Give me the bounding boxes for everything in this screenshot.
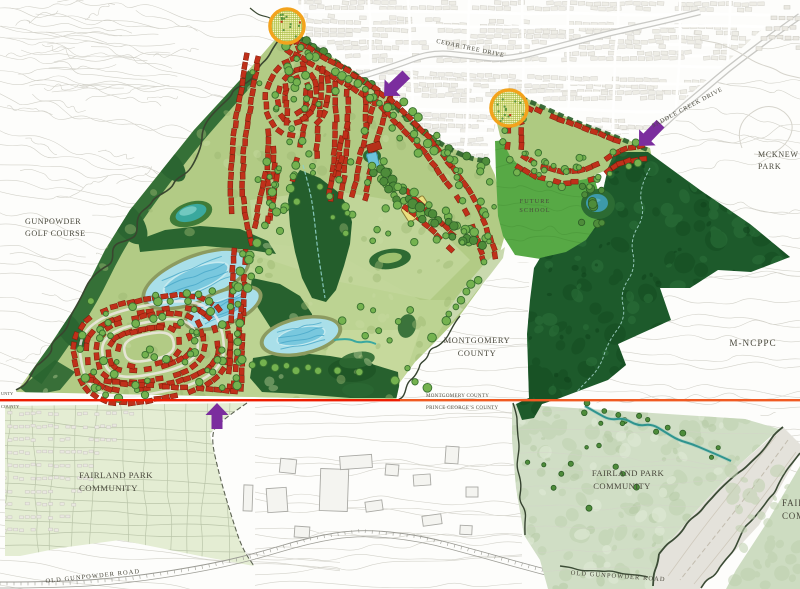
svg-text:FAIRLAND PARK: FAIRLAND PARK bbox=[592, 468, 665, 478]
svg-text:FUTURE: FUTURE bbox=[520, 198, 551, 205]
svg-text:GOLF COURSE: GOLF COURSE bbox=[25, 229, 86, 238]
svg-text:COUNTY: COUNTY bbox=[458, 349, 497, 358]
svg-text:SCHOOL: SCHOOL bbox=[519, 207, 550, 214]
svg-text:PRINCE GEORGE’S COUNTY: PRINCE GEORGE’S COUNTY bbox=[426, 406, 499, 411]
svg-text:M-NCPPC: M-NCPPC bbox=[729, 338, 776, 348]
svg-text:MCKNEW: MCKNEW bbox=[758, 150, 799, 159]
svg-text:COMMUNITY: COMMUNITY bbox=[79, 483, 138, 493]
svg-text:FAIRLAND PARK: FAIRLAND PARK bbox=[79, 470, 153, 480]
svg-text:FAIRL: FAIRL bbox=[782, 498, 800, 508]
svg-text:MONTGOMERY COUNTY: MONTGOMERY COUNTY bbox=[426, 394, 489, 399]
svg-text:UNTY: UNTY bbox=[1, 391, 14, 396]
svg-text:MONTGOMERY: MONTGOMERY bbox=[444, 336, 511, 345]
svg-text:PARK: PARK bbox=[758, 162, 781, 171]
svg-text:GUNPOWDER: GUNPOWDER bbox=[25, 217, 81, 226]
svg-text:COUNTY: COUNTY bbox=[1, 404, 20, 409]
svg-text:COMMUNITY: COMMUNITY bbox=[593, 481, 651, 491]
svg-text:COMM: COMM bbox=[782, 511, 800, 521]
